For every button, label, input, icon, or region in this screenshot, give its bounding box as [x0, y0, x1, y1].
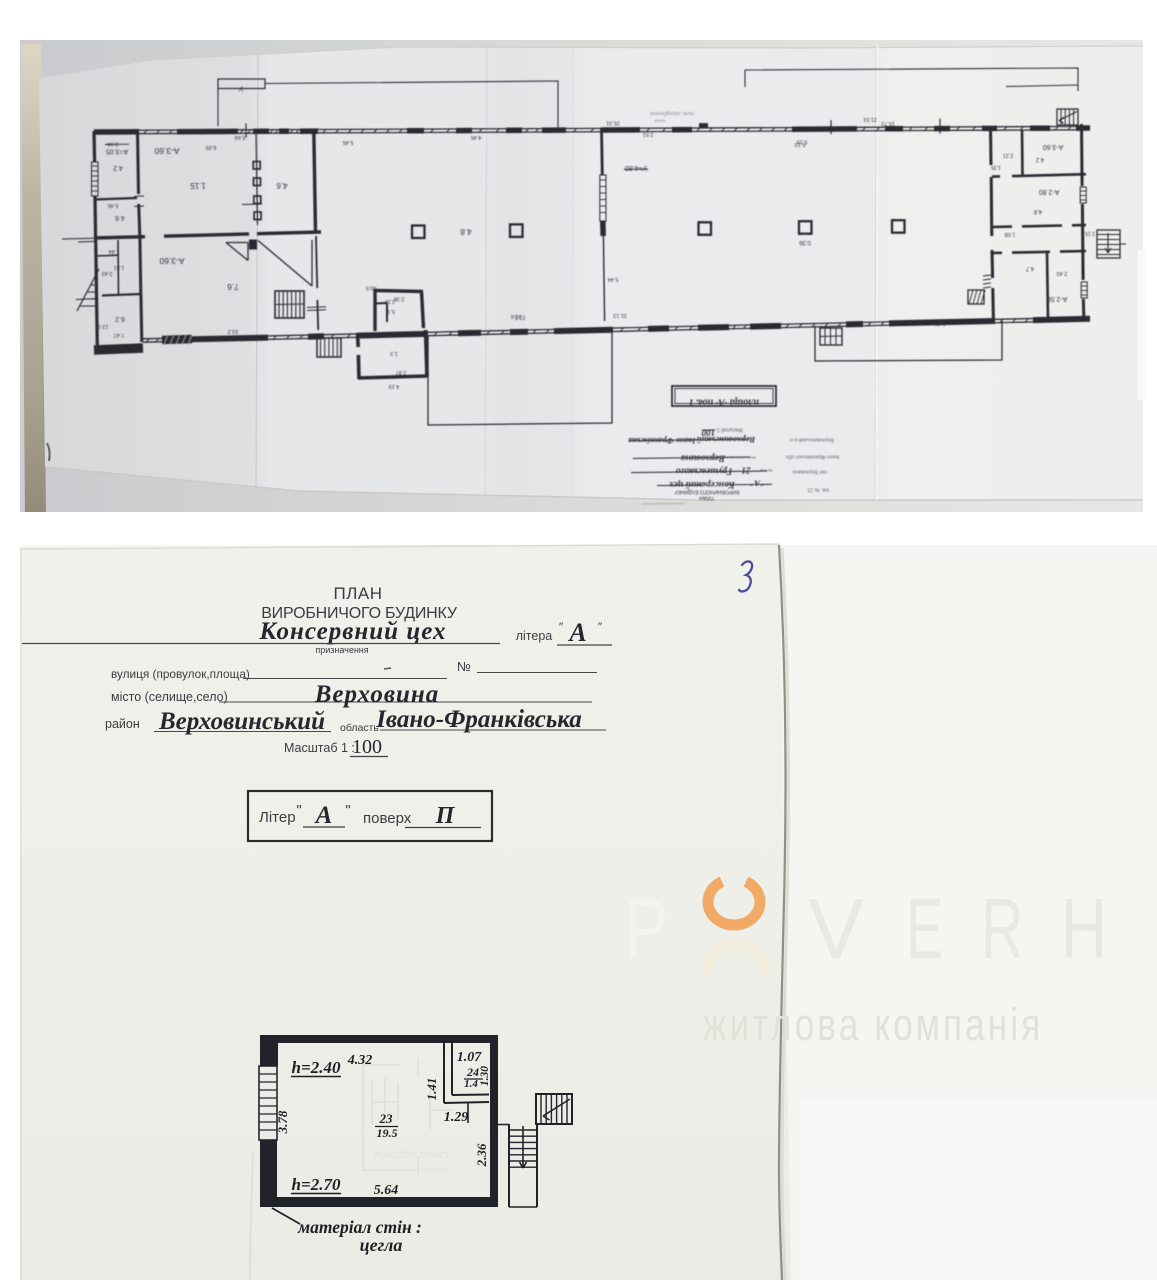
svg-text:H: H — [1061, 881, 1107, 976]
svg-text:житлова компанія: житлова компанія — [703, 999, 1043, 1050]
svg-text:Консервний цех: Консервний цех — [258, 618, 446, 645]
svg-text:ПЛАН: ПЛАН — [334, 584, 383, 603]
svg-text:поле: передбачено: поле: передбачено — [650, 110, 694, 116]
svg-text:": " — [345, 802, 350, 819]
svg-text:Івано-Франківська: Івано-Франківська — [628, 436, 696, 445]
svg-text:ПЛАН: ПЛАН — [699, 495, 714, 501]
svg-text:Масштаб 1 :: Масштаб 1 : — [284, 741, 355, 755]
svg-text:"А": "А" — [749, 479, 764, 489]
svg-text:площа ·А· пов. І: площа ·А· пов. І — [688, 397, 759, 408]
svg-text:Консервний цех: Консервний цех — [669, 479, 736, 490]
svg-text:П: П — [435, 803, 456, 829]
svg-text:25.31: 25.31 — [606, 120, 620, 126]
svg-text:7.47: 7.47 — [114, 332, 125, 338]
svg-text:2.51: 2.51 — [643, 131, 654, 137]
svg-text:7.6: 7.6 — [227, 282, 239, 292]
svg-text:площа: площа — [417, 1165, 448, 1176]
svg-text:Верховинський: Верховинський — [697, 435, 757, 445]
svg-text:вулиця: вулиця — [760, 469, 773, 474]
svg-text:0.36: 0.36 — [799, 239, 811, 245]
svg-text:4.8: 4.8 — [460, 227, 472, 236]
svg-text:А: А — [567, 618, 586, 647]
svg-text:100: 100 — [352, 736, 382, 758]
svg-text:4.8: 4.8 — [1033, 208, 1042, 214]
svg-text:2.94: 2.94 — [108, 141, 119, 147]
svg-text:24: 24 — [466, 1065, 479, 1079]
svg-text:15.72: 15.72 — [881, 120, 895, 126]
svg-text:R: R — [981, 882, 1023, 976]
svg-text:4.32: 4.32 — [347, 1053, 373, 1068]
svg-text:Івано-Франківська: Івано-Франківська — [375, 706, 582, 733]
svg-text:А-2.50: А-2.50 — [1047, 295, 1068, 302]
svg-text:4.2: 4.2 — [113, 164, 123, 171]
svg-text:вулиця (провулок,площа): вулиця (провулок,площа) — [111, 667, 250, 681]
svg-text:У=4.80: У=4.80 — [625, 164, 647, 171]
svg-text:5.44: 5.44 — [608, 276, 619, 282]
svg-text:19.5: 19.5 — [377, 1126, 398, 1140]
svg-text:5.1: 5.1 — [387, 308, 395, 314]
svg-text:Грушевського: Грушевського — [675, 466, 733, 476]
svg-text:21.51: 21.51 — [863, 116, 877, 122]
svg-text:літера: літера — [516, 629, 553, 643]
svg-text:2.21: 2.21 — [1003, 152, 1014, 158]
svg-text:2.87: 2.87 — [396, 369, 407, 375]
svg-text:місто (селище,село): місто (селище,село) — [111, 690, 228, 704]
svg-text:Івано-Франківської обл.: Івано-Франківської обл. — [785, 454, 840, 460]
svg-text:4.7: 4.7 — [1025, 265, 1034, 271]
svg-text:місто (селище,село): місто (селище,село) — [718, 456, 756, 461]
svg-text:5.05: 5.05 — [935, 320, 946, 326]
svg-text:1.58: 1.58 — [1005, 231, 1016, 237]
svg-text:5.45: 5.45 — [343, 139, 354, 145]
svg-text:1.81: 1.81 — [114, 264, 125, 270]
svg-text:1.15: 1.15 — [190, 181, 206, 190]
svg-text:31.12: 31.12 — [613, 312, 627, 318]
svg-text:інв. № 21: інв. № 21 — [807, 487, 829, 493]
svg-text:21.5: 21.5 — [515, 314, 526, 320]
svg-text:4.2: 4.2 — [1035, 156, 1044, 162]
svg-text:": " — [296, 802, 301, 819]
svg-text:2.43: 2.43 — [102, 270, 113, 276]
svg-text:цегла: цегла — [360, 1235, 403, 1255]
svg-text:район: район — [105, 717, 140, 731]
svg-text:смт Верховина: смт Верховина — [792, 469, 827, 475]
svg-text:У: У — [238, 85, 243, 92]
svg-text:А-3.60: А-3.60 — [159, 256, 184, 266]
svg-text:1.29: 1.29 — [444, 1110, 469, 1125]
svg-text:3.78: 3.78 — [275, 1110, 290, 1134]
svg-text:60.5: 60.5 — [366, 285, 377, 291]
svg-text:призначення: призначення — [315, 645, 368, 655]
svg-text:А: А — [314, 802, 333, 829]
svg-text:4.6: 4.6 — [115, 214, 125, 221]
svg-text:21: 21 — [742, 466, 752, 476]
svg-text:P: P — [624, 882, 668, 977]
svg-text:4.45: 4.45 — [471, 134, 482, 140]
svg-text:1.4: 1.4 — [464, 1078, 478, 1090]
svg-text:1.3: 1.3 — [390, 350, 398, 356]
svg-text:4.6: 4.6 — [276, 181, 288, 190]
svg-text:4.19: 4.19 — [389, 383, 400, 389]
svg-text:Масштаб 1:: Масштаб 1: — [716, 427, 743, 433]
svg-text:V: V — [808, 881, 865, 976]
svg-text:5.64: 5.64 — [235, 134, 246, 140]
svg-text:23: 23 — [379, 1111, 394, 1126]
svg-text:1.44: 1.44 — [109, 248, 120, 254]
svg-text:1.30: 1.30 — [479, 1066, 491, 1086]
svg-text:область: область — [340, 722, 379, 734]
svg-text:12.9: 12.9 — [98, 323, 109, 329]
svg-text:ВИРОБНИЧОГО БУДИНКУ: ВИРОБНИЧОГО БУДИНКУ — [674, 489, 739, 495]
svg-text:33.2: 33.2 — [228, 328, 239, 334]
svg-text:смуга відступу: смуга відступу — [374, 1149, 448, 1161]
svg-text:Літер: Літер — [259, 809, 296, 826]
svg-text:2.36: 2.36 — [474, 1143, 489, 1167]
svg-text:1.35: 1.35 — [991, 164, 1001, 170]
svg-text:Верховинський: Верховинський — [158, 708, 325, 735]
svg-text:А-3.60: А-3.60 — [1043, 143, 1064, 150]
svg-text:1.07: 1.07 — [457, 1050, 483, 1065]
svg-text:Верховина: Верховина — [314, 681, 440, 708]
svg-text:А-2.80: А-2.80 — [1039, 188, 1060, 195]
svg-text:2.15: 2.15 — [1085, 230, 1095, 236]
svg-text:матеріал стін :: матеріал стін : — [297, 1217, 422, 1237]
svg-text:2.43: 2.43 — [1057, 270, 1068, 276]
svg-text:А-3.60: А-3.60 — [154, 146, 179, 156]
svg-text:h=2.40: h=2.40 — [292, 1058, 341, 1077]
svg-text:E: E — [906, 882, 943, 976]
svg-text:6.2: 6.2 — [115, 315, 125, 322]
svg-text:№: № — [457, 659, 471, 674]
svg-text:поверх: поверх — [363, 810, 412, 827]
svg-text:5.64: 5.64 — [374, 1183, 399, 1198]
svg-text:5.13: 5.13 — [795, 141, 806, 147]
svg-text:1.41: 1.41 — [424, 1078, 439, 1101]
svg-text:6.09: 6.09 — [206, 144, 217, 150]
svg-text:Верховинський р-н: Верховинський р-н — [790, 437, 834, 444]
svg-text:ганок: ганок — [654, 119, 665, 124]
svg-text:2.36: 2.36 — [385, 298, 395, 304]
svg-text:h=2.70: h=2.70 — [292, 1175, 341, 1194]
svg-text:5.45: 5.45 — [108, 202, 119, 208]
svg-text:А=3.05: А=3.05 — [106, 148, 128, 155]
